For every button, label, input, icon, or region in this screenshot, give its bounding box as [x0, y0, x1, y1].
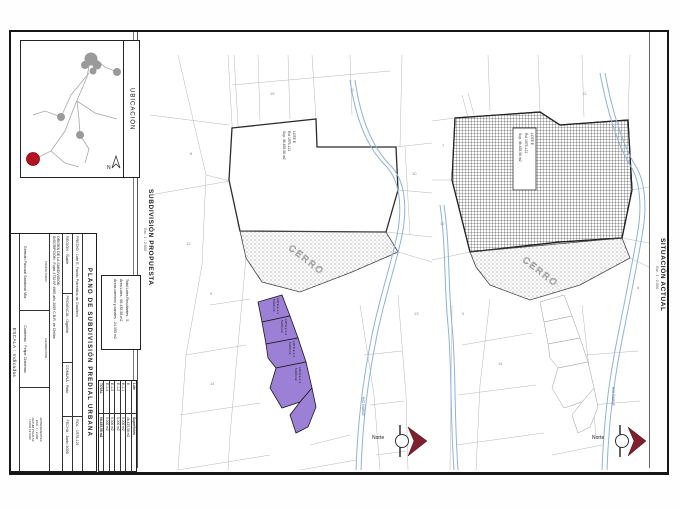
owner-name: Germán Pascual Sandoval Vila: [23, 246, 27, 298]
inset-title: UBICACIÓN: [129, 88, 135, 130]
cell-sup: 5.000 m2: [104, 414, 108, 471]
title-block-row-signatures: PROPIETARIO : Germán Pascual Sandoval Vi…: [19, 234, 49, 471]
parcel-number: 8: [637, 285, 640, 290]
map-current: 7 10 12 9 14 8 CAMINO LOTE E Rol 1975-12…: [432, 55, 649, 470]
summary-line-total-lots: Total Lotes Resultantes : 5: [125, 279, 129, 346]
subdivided-lots: [258, 295, 316, 433]
site-location-dot: [27, 153, 40, 166]
cell-lote: E-1-2: [115, 381, 119, 414]
lote-e-hatched: LOTE E Rol 1975-121 Sup. 46.435,58 m2: [452, 112, 632, 252]
table-row: E-1-3 5.000 m2: [109, 381, 114, 471]
cell-lote: E-1-4: [104, 381, 108, 414]
cell-lote: E-1-1: [121, 381, 125, 414]
inset-north-icon: N: [107, 156, 120, 171]
title-block: PLANO DE SUBDIVISIÓN PREDIAL URBANA PRED…: [10, 233, 97, 472]
surfaces-header-row: Lote Superficies: [131, 381, 136, 471]
surveyor-role: GEOMENSOR :: [44, 338, 48, 360]
river-label: RÍO ÑUBLE: [611, 387, 616, 407]
caption-current-scale: Esc. 1 : 2.000: [655, 266, 659, 289]
parcel-number: 13: [414, 311, 419, 316]
inset-title-strip: UBICACIÓN: [123, 41, 139, 177]
lote-e-label-line2: Rol 1975-121: [524, 133, 528, 153]
parcel-number: 15: [270, 91, 275, 96]
inscripcion-field: INSCRIPCIÓN : Fojas 4732 Nº 4985 año 200…: [52, 236, 56, 471]
lote-e-label-line1: LOTE E: [530, 133, 534, 146]
caption-current: SITUACIÓN ACTUAL Esc. 1 : 2.000: [652, 215, 666, 335]
title-block-row-origen: ORIGEN DE LA SUBDIVISIÓN INSCRIPCIÓN : F…: [49, 234, 62, 471]
location-inset: N UBICACIÓN: [20, 40, 140, 178]
table-row: E 46.435,58 m2: [125, 381, 130, 471]
plan-sheet-scan: N UBICACIÓN SUBDIVISIÓN PROPUESTA Esc. 1…: [0, 0, 680, 510]
lote-e-boundary: [229, 119, 398, 232]
layout-divider-right: [649, 32, 650, 468]
surfaces-col-sup: Superficies: [132, 414, 136, 471]
summary-line-lot-area: Área Lotes : 66.435,58 m2: [119, 279, 123, 346]
lot-label-area: 5.000 m2: [294, 368, 298, 381]
parcel-number: 9: [210, 291, 213, 296]
lot-label-area: 5.000 m2: [288, 342, 292, 355]
cell-lote: E: [126, 381, 130, 414]
map-proposed: 8 12 9 15 11 10 13 14 CAMINO CERRO LOTE …: [150, 55, 432, 470]
owner-role: PROPIETARIO :: [44, 261, 48, 283]
surfaces-total-row: TOTAL 66.435,58 m2: [99, 381, 103, 471]
cell-lote: E-1-3: [110, 381, 114, 414]
parcel-number: 14: [498, 361, 503, 366]
parcel-number: 14: [210, 381, 215, 386]
lote-e-label-line3: Sup. 46.435,58 m2: [518, 133, 522, 162]
escala-field: ESCALA : Indicadas: [11, 234, 19, 471]
north-arrow-head: [628, 427, 646, 456]
lot-label-area: 5.000 m2: [280, 320, 284, 333]
caption-current-title: SITUACIÓN ACTUAL: [659, 238, 666, 312]
note-line: ESC. 1 : 2.000: [35, 420, 39, 440]
fecha-field: FECHA : Junio 2005: [63, 417, 72, 471]
north-label: Norte: [372, 435, 384, 441]
parcel-number: 10: [412, 171, 417, 176]
note-line: HUSO 19 SUR: [27, 419, 31, 439]
summary-line-road-area: Áreas caminos y canales : 24.193 m2: [113, 279, 117, 346]
river-label: RÍO ÑUBLE: [361, 397, 366, 417]
surveyor-signature-box: GEOMENSOR : Contreras · Felipe Cisternas: [20, 311, 49, 388]
caption-proposed-scale: Esc. 1 : 2.000: [143, 228, 147, 251]
lots-summary-box: Total Lotes Resultantes : 5 Área Lotes :…: [101, 275, 141, 350]
parcel-number: 12: [186, 241, 191, 246]
cell-sup: 46.435,58 m2: [126, 414, 130, 471]
notes-box: ANTECEDENTES ESC. 1 : 2.000 DATUM PSAD-5…: [20, 388, 49, 471]
parcel-number: 9: [462, 311, 465, 316]
surfaces-col-lote: Lote: [132, 381, 136, 414]
title-block-row-predio: PREDIO : Lote E, Fundo Potrerillos de Gu…: [72, 234, 82, 471]
rol-field: ROL : 1975-121: [73, 417, 82, 471]
north-arrow: Norte: [592, 425, 646, 457]
region-field: REGIÓN : Ñuble: [63, 234, 72, 294]
parcel-number: 7: [442, 143, 445, 148]
parcel-number: 12: [582, 91, 587, 96]
cell-sup: 5.000 m2: [121, 414, 125, 471]
total-value: 66.435,58 m2: [99, 414, 103, 471]
cell-sup: 5.000 m2: [115, 414, 119, 471]
inset-north-label: N: [107, 165, 111, 171]
north-arrow-head: [408, 427, 427, 456]
lote-e-label-line3: Sup. 46.435,58 m2: [282, 131, 286, 160]
total-label: TOTAL: [99, 381, 103, 414]
surveyor-name: Contreras · Felipe Cisternas: [23, 325, 27, 372]
comuna-field: COMUNA : Pinto: [63, 363, 72, 418]
river: [350, 80, 405, 470]
owner-signature-box: PROPIETARIO : Germán Pascual Sandoval Vi…: [20, 234, 49, 311]
surfaces-table: Lote Superficies E 46.435,58 m2 E-1-1 5.…: [98, 380, 137, 472]
cerro-area: CERRO: [240, 231, 398, 292]
provincia-field: PROVINCIA : Diguillín: [63, 294, 72, 363]
table-row: E-1-1 5.000 m2: [120, 381, 125, 471]
parcel-number: 8: [190, 151, 193, 156]
inset-roads: [33, 55, 117, 167]
lot-label-area: 5.000 m2: [272, 299, 276, 312]
table-row: E-1-2 5.000 m2: [114, 381, 119, 471]
title-block-row-region: REGIÓN : Ñuble PROVINCIA : Diguillín COM…: [62, 234, 72, 471]
plan-title: PLANO DE SUBDIVISIÓN PREDIAL URBANA: [82, 234, 96, 471]
north-label: Norte: [592, 435, 604, 441]
cell-sup: 5.000 m2: [110, 414, 114, 471]
predio-field: PREDIO : Lote E, Fundo Potrerillos de Gu…: [73, 234, 82, 417]
north-arrow: Norte: [372, 425, 427, 457]
lote-e-label-line2: Rol 1975-121: [287, 131, 291, 151]
origen-field: ORIGEN DE LA SUBDIVISIÓN: [56, 236, 60, 471]
lote-e-label-line1: LOTE E: [292, 131, 296, 144]
location-map: N: [21, 41, 122, 174]
table-row: E-1-4 5.000 m2: [103, 381, 108, 471]
